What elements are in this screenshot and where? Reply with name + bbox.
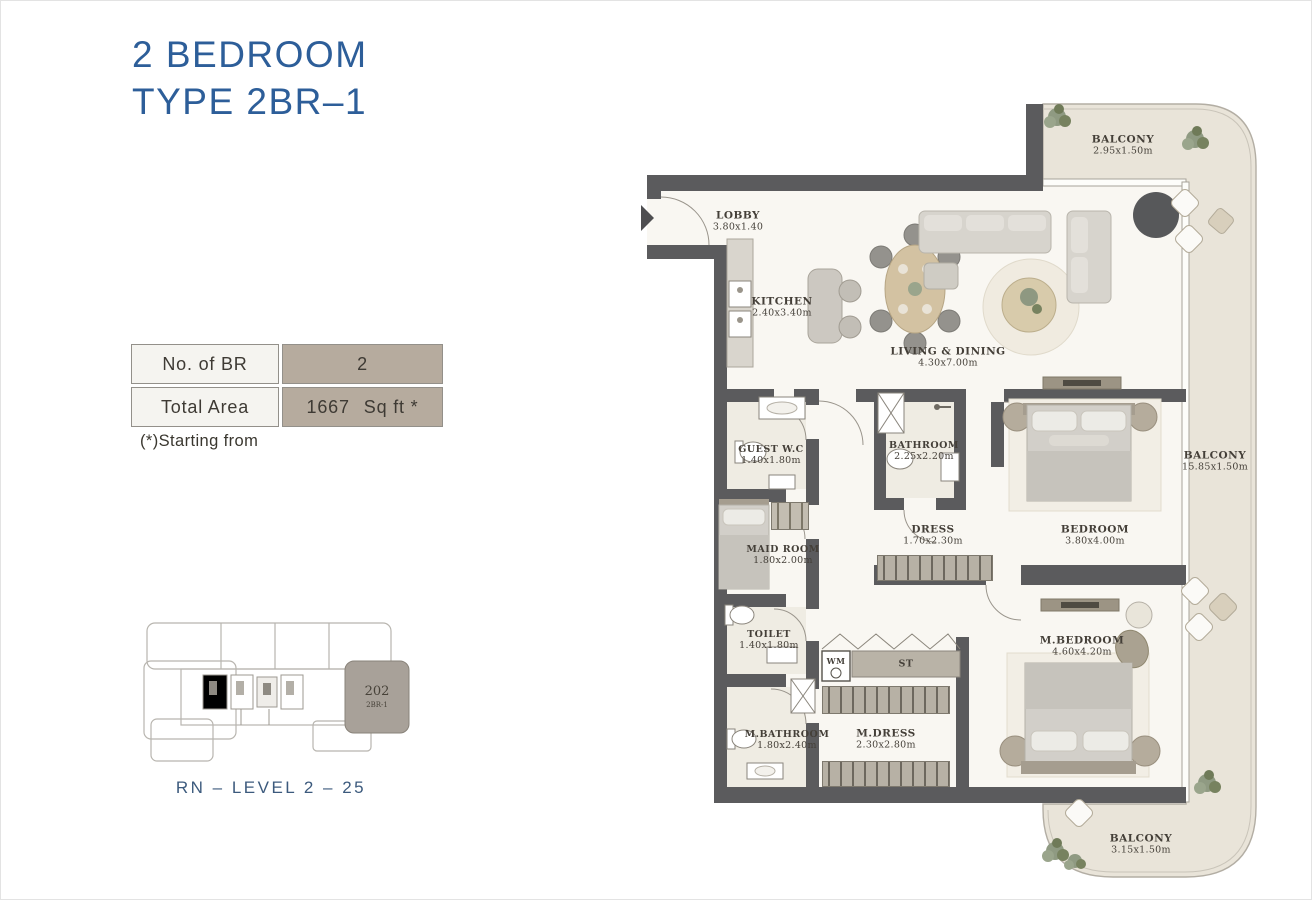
key-plan: 202 2BR-1 (123, 609, 439, 789)
dress-wardrobe-strip (877, 555, 993, 581)
spec-value-no-of-br: 2 (282, 344, 443, 384)
page-title-line2: TYPE 2BR–1 (132, 78, 368, 125)
spec-value-total-area: 1667 Sq ft * (282, 387, 443, 427)
key-plan-unit-number: 202 (365, 684, 390, 699)
fixture-label-st: ST (899, 659, 914, 670)
spec-label-no-of-br: No. of BR (131, 344, 279, 384)
room-label-m-dress: M.DRESS 2.30x2.80m (856, 728, 916, 751)
spec-row-bedrooms: No. of BR 2 (131, 344, 443, 384)
room-label-maid-room: MAID ROOM 1.80x2.00m (746, 544, 819, 566)
level-caption: RN – LEVEL 2 – 25 (151, 778, 391, 798)
room-label-toilet: TOILET 1.40x1.80m (739, 629, 799, 651)
spec-area-number: 1667 (307, 397, 350, 418)
m-dress-bottom-wardrobe (822, 761, 950, 787)
key-plan-highlighted-unit: 202 2BR-1 (345, 661, 409, 733)
kitchen-counter (727, 239, 753, 367)
room-label-living-dining: LIVING & DINING 4.30x7.00m (890, 346, 1005, 369)
page-title-line1: 2 BEDROOM (132, 31, 368, 78)
brochure-page: { "title": { "line1": "2 BEDROOM", "line… (0, 0, 1312, 900)
room-label-bathroom: BATHROOM 2.25x2.20m (889, 440, 959, 462)
key-plan-core-units (203, 675, 303, 725)
page-title: 2 BEDROOM TYPE 2BR–1 (132, 31, 368, 126)
maid-wardrobe (771, 502, 809, 530)
room-label-bedroom: BEDROOM 3.80x4.00m (1061, 524, 1129, 547)
fixture-label-wm: WM (827, 656, 846, 666)
room-label-lobby: LOBBY 3.80x1.40 (713, 210, 763, 233)
spec-table: No. of BR 2 Total Area 1667 Sq ft * (131, 344, 443, 430)
room-label-balcony-top: BALCONY 2.95x1.50m (1092, 134, 1155, 157)
spec-value-text: 2 (357, 354, 368, 375)
m-dress-top-wardrobe (822, 686, 950, 714)
key-plan-unit-type: 2BR-1 (366, 701, 388, 709)
room-label-kitchen: KITCHEN 2.40x3.40m (751, 296, 812, 319)
spec-area-unit: Sq ft * (364, 397, 419, 418)
room-label-dress: DRESS 1.70x2.30m (903, 524, 963, 547)
key-plan-drawing: 202 2BR-1 (123, 609, 439, 784)
room-label-m-bedroom: M.BEDROOM 4.60x4.20m (1040, 635, 1124, 658)
room-label-balcony-bottom: BALCONY 3.15x1.50m (1110, 833, 1173, 856)
spec-label-total-area: Total Area (131, 387, 279, 427)
room-label-balcony-right: BALCONY 15.85x1.50m (1182, 450, 1248, 473)
room-label-guest-wc: GUEST W.C 1.40x1.80m (738, 444, 803, 466)
spec-row-area: Total Area 1667 Sq ft * (131, 387, 443, 427)
column (1133, 192, 1179, 238)
floor-plan: LOBBY 3.80x1.40 KITCHEN 2.40x3.40m LIVIN… (619, 87, 1281, 893)
starting-from-note: (*)Starting from (140, 432, 258, 451)
floor-plan-drawing (619, 87, 1281, 893)
room-label-m-bathroom: M.BATHROOM 1.80x2.40m (745, 729, 830, 751)
